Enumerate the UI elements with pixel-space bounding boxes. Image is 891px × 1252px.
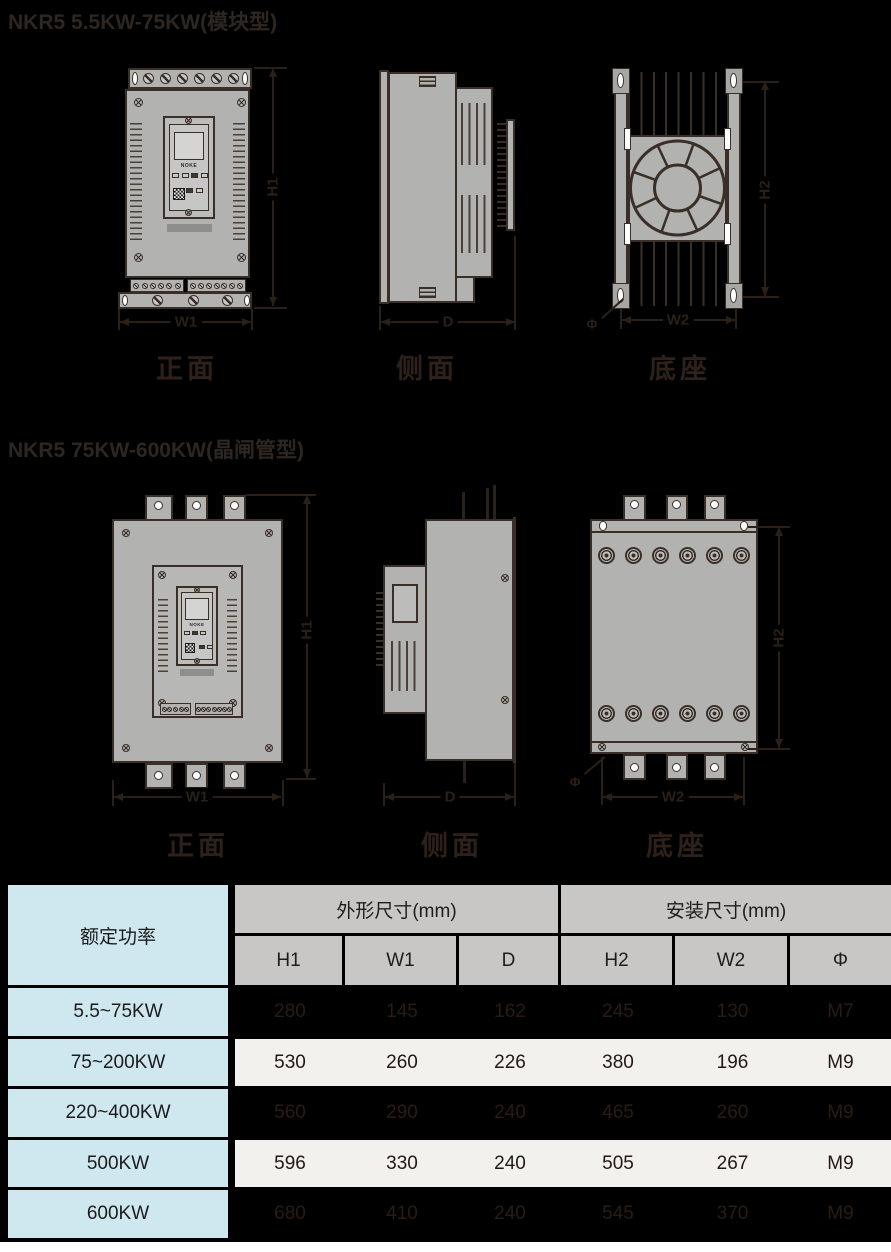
arrow-icon xyxy=(272,793,281,801)
vent-grille xyxy=(130,122,142,240)
mount-plate-edge xyxy=(513,517,516,763)
screw-icon xyxy=(134,253,143,262)
section2-title: NKR5 75KW-600KW(晶闸管型) xyxy=(8,434,304,464)
screw-icon xyxy=(501,574,509,582)
view-caption: 正面 xyxy=(156,347,218,386)
busbar-hole xyxy=(154,771,163,780)
view-caption: 底座 xyxy=(646,824,708,863)
dim-label-d: D xyxy=(441,788,460,807)
power-cell: 600KW xyxy=(8,1190,228,1238)
panel-button xyxy=(201,173,208,178)
power-cell: 5.5~75KW xyxy=(8,988,228,1036)
dim-label-h1: H1 xyxy=(298,616,317,643)
mounting-dims-group-header: 安装尺寸(mm) xyxy=(561,885,891,933)
arrow-icon xyxy=(269,297,277,306)
screw-icon xyxy=(679,705,696,722)
arrow-icon xyxy=(381,318,390,326)
control-window xyxy=(392,584,418,623)
busbar-hole xyxy=(672,500,681,509)
dim-value: 596 xyxy=(235,1140,345,1187)
device-body xyxy=(388,72,457,303)
screw-icon xyxy=(133,283,139,289)
qr-code-icon xyxy=(185,643,195,653)
keyhole-slot xyxy=(740,521,748,531)
dim-value: 530 xyxy=(235,1039,345,1086)
mount-hole xyxy=(244,295,250,306)
screw-icon xyxy=(190,283,196,289)
view-caption: 侧面 xyxy=(421,824,483,863)
vent-slats xyxy=(461,103,489,165)
arrow-icon xyxy=(726,316,735,324)
column-header-w2: W2 xyxy=(675,936,787,985)
arrow-icon xyxy=(775,527,783,536)
screw-icon xyxy=(188,295,199,306)
busbar-hole xyxy=(710,763,719,772)
screw-icon xyxy=(211,73,222,84)
dim-value: 226 xyxy=(459,1039,561,1086)
arrow-icon xyxy=(385,793,394,801)
busbar-hole xyxy=(154,501,163,510)
screw-icon xyxy=(652,705,669,722)
dim-value: 260 xyxy=(675,1089,790,1137)
dim-value: 130 xyxy=(675,988,790,1036)
vent-grille xyxy=(227,597,237,672)
dim-value: M9 xyxy=(790,1089,891,1137)
screw-icon xyxy=(214,283,220,289)
brand-label: NOKE xyxy=(169,164,209,169)
din-clip xyxy=(419,76,436,87)
view-caption: 底座 xyxy=(649,347,711,386)
panel-button xyxy=(184,631,190,635)
screw-icon xyxy=(185,117,192,124)
dim-extension-line xyxy=(254,307,287,309)
dim-value: 290 xyxy=(345,1089,459,1137)
mount-rail xyxy=(614,70,628,307)
arrow-icon xyxy=(761,81,769,90)
plate-seam xyxy=(592,741,756,743)
mount-hole xyxy=(730,73,737,88)
arrow-icon xyxy=(506,318,515,326)
screw-icon xyxy=(706,705,723,722)
terminal-block xyxy=(130,279,184,292)
arrow-icon xyxy=(269,68,277,77)
dim-value: M7 xyxy=(790,988,891,1036)
screw-icon xyxy=(237,283,243,289)
screw-icon xyxy=(652,547,669,564)
dim-value: 245 xyxy=(561,988,675,1036)
dim-extension-line xyxy=(748,748,790,750)
arrow-icon xyxy=(114,793,123,801)
fan-icon xyxy=(628,135,727,242)
dim-value: 240 xyxy=(459,1089,561,1137)
mount-hole xyxy=(122,295,128,306)
screw-icon xyxy=(150,283,156,289)
dim-label-w1: W1 xyxy=(182,788,213,807)
screw-icon xyxy=(177,73,188,84)
arrow-icon xyxy=(603,793,612,801)
arrow-icon xyxy=(120,318,129,326)
dim-value: 280 xyxy=(235,988,345,1036)
dim-value: 545 xyxy=(561,1190,675,1238)
vent-slats xyxy=(461,195,489,253)
mount-hole xyxy=(730,288,737,303)
screw-icon xyxy=(122,744,130,752)
busbar-hole xyxy=(710,500,719,509)
mount-hole xyxy=(242,72,248,85)
power-cell: 500KW xyxy=(8,1140,228,1187)
screw-icon xyxy=(206,283,212,289)
panel-button xyxy=(200,631,206,635)
dim-value: M9 xyxy=(790,1190,891,1238)
keyhole-slot xyxy=(599,521,607,531)
dim-label-w2: W2 xyxy=(663,311,694,330)
busbar-pin xyxy=(493,485,496,520)
dim-label-w2: W2 xyxy=(658,788,689,807)
dim-value: 162 xyxy=(459,988,561,1036)
panel-button xyxy=(182,173,189,178)
busbar-hole xyxy=(230,501,239,510)
screw-icon xyxy=(166,283,172,289)
arrow-icon xyxy=(505,793,514,801)
table-row: 560 290 240 465 260 M9 xyxy=(235,1089,891,1137)
busbar-pin xyxy=(462,492,465,520)
heatsink-fins xyxy=(628,72,727,137)
screw-icon xyxy=(501,696,509,704)
dim-label-w1: W1 xyxy=(171,313,202,332)
dim-value: 145 xyxy=(345,988,459,1036)
dim-value: 240 xyxy=(459,1140,561,1187)
busbar-hole xyxy=(230,771,239,780)
dim-value: 370 xyxy=(675,1190,790,1238)
mount-hole xyxy=(132,72,138,85)
panel-button xyxy=(207,645,213,649)
brand-label: NOKE xyxy=(181,623,213,628)
view-caption: 侧面 xyxy=(396,347,458,386)
screw-icon xyxy=(184,707,189,712)
arrow-icon xyxy=(622,316,631,324)
dim-extension-line xyxy=(286,778,316,780)
power-header-cell: 额定功率 xyxy=(8,885,228,985)
screw-icon xyxy=(158,571,166,579)
section1-title: NKR5 5.5KW-75KW(模块型) xyxy=(8,6,277,36)
busbar-hole xyxy=(630,763,639,772)
qr-code-icon xyxy=(173,188,185,200)
dim-extension-line xyxy=(735,308,737,329)
dim-value: 196 xyxy=(675,1039,790,1086)
dim-value: 560 xyxy=(235,1089,345,1137)
view-caption: 正面 xyxy=(167,824,229,863)
dim-extension-line xyxy=(748,526,790,528)
busbar-pin xyxy=(486,488,489,520)
column-header-d: D xyxy=(459,936,558,985)
screw-icon xyxy=(221,283,227,289)
terminal-teeth xyxy=(497,123,506,227)
table-row: 680 410 240 545 370 M9 xyxy=(235,1190,891,1238)
busbar-pin xyxy=(463,761,466,783)
dim-extension-line xyxy=(282,780,284,806)
screw-icon xyxy=(173,707,178,712)
dim-value: 680 xyxy=(235,1190,345,1238)
terminal-rail xyxy=(506,119,515,231)
dim-value: 410 xyxy=(345,1190,459,1238)
vent-grille xyxy=(158,597,168,672)
screw-icon xyxy=(206,707,211,712)
screw-icon xyxy=(265,744,273,752)
terminal-block xyxy=(195,703,233,715)
outline-dims-group-header: 外形尺寸(mm) xyxy=(235,885,558,933)
busbar-hole xyxy=(192,501,201,510)
mount-hole xyxy=(617,73,624,88)
screw-icon xyxy=(179,707,184,712)
terminal-block xyxy=(187,279,246,292)
panel-button xyxy=(192,631,198,635)
screw-icon xyxy=(227,707,232,712)
lcd-display xyxy=(185,598,209,620)
screw-icon xyxy=(237,98,246,107)
screw-icon xyxy=(167,707,172,712)
power-cell: 220~400KW xyxy=(8,1089,228,1137)
dim-value: 260 xyxy=(345,1039,459,1086)
panel-button xyxy=(172,173,179,178)
vent-grille xyxy=(233,122,245,240)
panel-buttons xyxy=(184,631,206,635)
dim-extension-line xyxy=(251,309,253,330)
dim-label-phi: Φ xyxy=(566,774,585,791)
screw-icon xyxy=(229,283,235,289)
panel-buttons xyxy=(199,645,213,649)
screw-icon xyxy=(175,283,181,289)
terminal-teeth xyxy=(376,590,384,666)
screw-icon xyxy=(217,707,222,712)
screw-icon xyxy=(237,253,246,262)
screw-icon xyxy=(598,705,615,722)
screw-icon xyxy=(706,547,723,564)
screw-icon xyxy=(194,73,205,84)
screw-icon xyxy=(143,73,154,84)
arrow-icon xyxy=(761,287,769,296)
screw-icon xyxy=(228,73,239,84)
screw-icon xyxy=(134,98,143,107)
column-header-w1: W1 xyxy=(345,936,456,985)
screw-icon xyxy=(229,571,237,579)
screw-icon xyxy=(142,283,148,289)
dim-extension-line xyxy=(743,296,779,298)
screw-icon xyxy=(625,547,642,564)
dim-value: 240 xyxy=(459,1190,561,1238)
panel-button xyxy=(191,173,198,178)
screw-icon xyxy=(212,707,217,712)
table-row: 530 260 226 380 196 M9 xyxy=(235,1039,891,1086)
panel-slot xyxy=(167,224,212,232)
dim-extension-line xyxy=(743,757,745,805)
table-row: 280 145 162 245 130 M7 xyxy=(235,988,891,1036)
panel-slot xyxy=(180,669,214,676)
screw-icon xyxy=(185,209,192,216)
screw-icon xyxy=(625,705,642,722)
device-body xyxy=(425,519,514,761)
column-header-phi: Φ xyxy=(790,936,891,985)
plate-seam xyxy=(592,531,756,533)
panel-button xyxy=(196,188,203,193)
dim-label-h2: H2 xyxy=(756,176,775,203)
dim-extension-line xyxy=(514,763,516,806)
panel-buttons xyxy=(172,173,208,178)
dim-value: M9 xyxy=(790,1039,891,1086)
heatsink-step xyxy=(455,276,475,303)
mount-rail xyxy=(727,70,741,307)
dim-label-d: D xyxy=(439,313,458,332)
page-bottom-strip xyxy=(0,1242,891,1252)
dim-value: M9 xyxy=(790,1140,891,1187)
dim-label-h1: H1 xyxy=(264,173,283,200)
lcd-display xyxy=(174,132,204,160)
busbar-hole xyxy=(630,500,639,509)
arrow-icon xyxy=(303,769,311,778)
terminal-block xyxy=(160,703,191,715)
screw-icon xyxy=(733,547,750,564)
column-header-h2: H2 xyxy=(561,936,672,985)
screw-icon xyxy=(160,73,171,84)
arrow-icon xyxy=(775,739,783,748)
dim-value: 267 xyxy=(675,1140,790,1187)
screw-icon xyxy=(152,295,163,306)
dim-extension-line xyxy=(514,236,516,330)
screw-icon xyxy=(198,283,204,289)
screw-icon xyxy=(194,587,200,593)
heatsink-fins xyxy=(628,240,727,306)
screw-icon xyxy=(222,295,233,306)
dim-value: 330 xyxy=(345,1140,459,1187)
datasheet-page: NKR5 5.5KW-75KW(模块型) NOKE xyxy=(0,0,891,1252)
table-row: 596 330 240 505 267 M9 xyxy=(235,1140,891,1187)
column-header-h1: H1 xyxy=(235,936,342,985)
vent-slats xyxy=(391,641,421,691)
screw-icon xyxy=(679,547,696,564)
panel-buttons xyxy=(186,188,203,193)
arrow-icon xyxy=(303,495,311,504)
dim-value: 505 xyxy=(561,1140,675,1187)
panel-button xyxy=(186,188,193,193)
screw-icon xyxy=(162,707,167,712)
dim-label-h2: H2 xyxy=(770,624,789,651)
screw-icon xyxy=(265,529,273,537)
busbar-hole xyxy=(672,763,681,772)
screw-icon xyxy=(741,743,749,751)
busbar-hole xyxy=(192,771,201,780)
screw-icon xyxy=(598,743,606,751)
screw-icon xyxy=(598,547,615,564)
screw-icon xyxy=(158,283,164,289)
dim-value: 465 xyxy=(561,1089,675,1137)
power-cell: 75~200KW xyxy=(8,1039,228,1086)
panel-button xyxy=(199,645,205,649)
dim-label-phi: Φ xyxy=(583,316,602,333)
din-clip xyxy=(419,287,436,298)
screw-icon xyxy=(194,658,200,664)
screw-icon xyxy=(122,529,130,537)
arrow-icon xyxy=(734,793,743,801)
screw-icon xyxy=(733,705,750,722)
dim-value: 380 xyxy=(561,1039,675,1086)
arrow-icon xyxy=(242,318,251,326)
